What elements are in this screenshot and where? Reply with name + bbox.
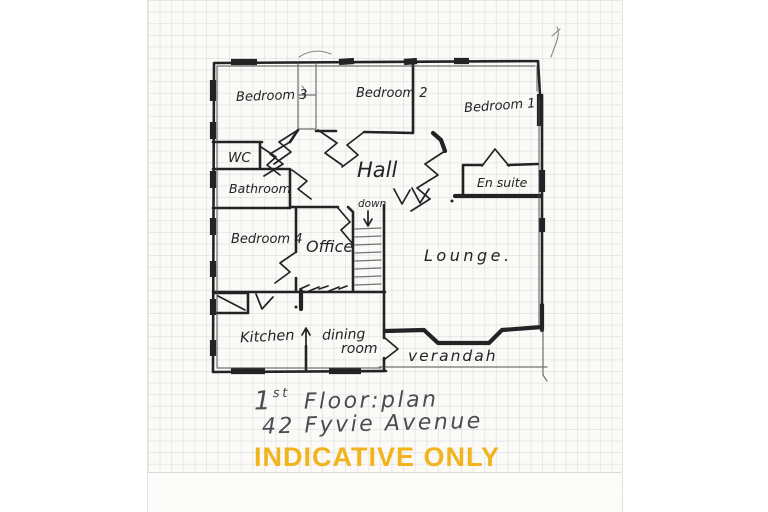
stairs-down-label: down xyxy=(358,198,386,210)
room-label-lounge: Lounge. xyxy=(424,246,513,265)
indicative-only-watermark: INDICATIVE ONLY xyxy=(254,442,500,472)
room-label-dining-line2: room xyxy=(341,341,378,357)
room-label-bedroom-3: Bedroom 3 xyxy=(236,88,308,105)
kitchen-opening-arrow xyxy=(302,328,310,345)
down-arrow xyxy=(364,211,372,226)
room-label-hall: Hall xyxy=(357,158,397,182)
room-label-bathroom: Bathroom xyxy=(229,181,291,196)
room-label-bedroom-2: Bedroom 2 xyxy=(356,86,428,101)
room-label-ensuite: En suite xyxy=(477,175,528,190)
ink-dot xyxy=(295,306,298,309)
caption-line-2: 42 Fyvie Avenue xyxy=(262,409,483,440)
room-label-wc: WC xyxy=(228,150,251,166)
floor-plan-drawing: Bedroom 3 Bedroom 2 Bedroom 1 WC Hall En… xyxy=(0,0,768,512)
labels-layer: Bedroom 3 Bedroom 2 Bedroom 1 WC Hall En… xyxy=(228,86,536,365)
floor-plan-photo: Bedroom 3 Bedroom 2 Bedroom 1 WC Hall En… xyxy=(0,0,768,512)
room-label-bedroom-4: Bedroom 4 xyxy=(231,232,303,247)
caption-layer: 1stFloor:plan 42 Fyvie Avenue xyxy=(254,383,483,439)
room-label-bedroom-1: Bedroom 1 xyxy=(464,96,536,116)
room-label-office: Office xyxy=(306,237,353,256)
ink-dot xyxy=(451,200,454,203)
stray-arc-mark xyxy=(299,51,331,57)
room-label-verandah: verandah xyxy=(408,347,498,365)
room-label-kitchen: Kitchen xyxy=(240,328,295,347)
stray-squiggle-mark xyxy=(551,27,560,57)
